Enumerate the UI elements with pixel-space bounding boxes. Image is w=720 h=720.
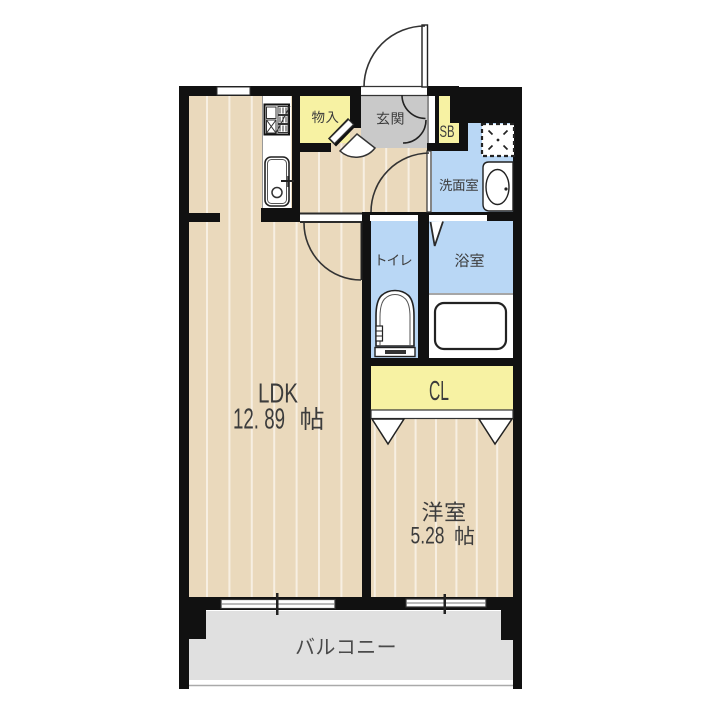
svg-text:CL: CL [429,375,449,406]
svg-text:5.28: 5.28 [411,523,445,550]
svg-text:12. 89: 12. 89 [233,404,285,436]
svg-text:SB: SB [440,122,455,141]
